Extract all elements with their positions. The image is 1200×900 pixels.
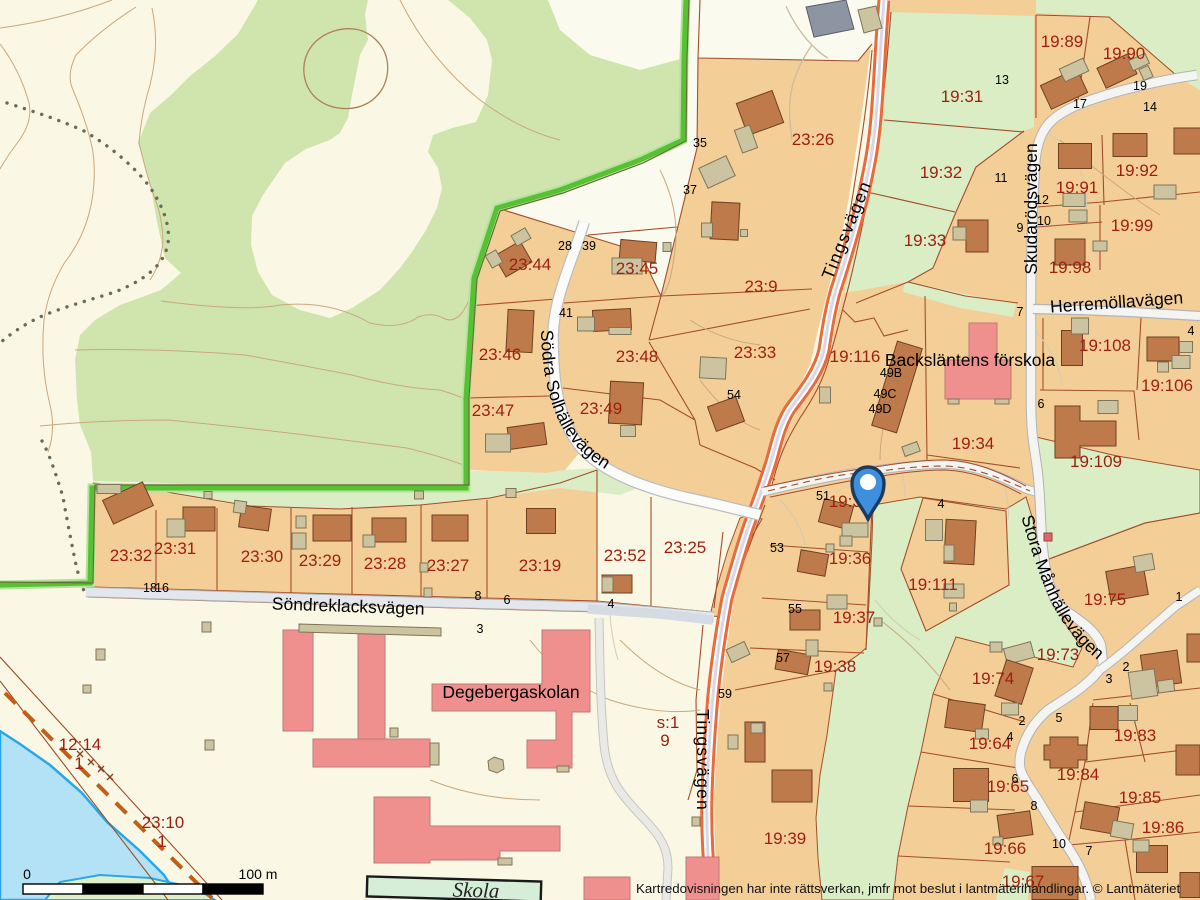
svg-text:23:46: 23:46 (479, 345, 522, 364)
svg-text:6: 6 (1038, 397, 1045, 411)
svg-text:19:89: 19:89 (1041, 32, 1084, 51)
svg-text:54: 54 (727, 388, 741, 402)
svg-text:19: 19 (1133, 79, 1147, 93)
svg-text:57: 57 (776, 651, 790, 665)
svg-text:17: 17 (1073, 97, 1087, 111)
svg-text:19:73: 19:73 (1037, 645, 1080, 664)
svg-text:49D: 49D (869, 402, 892, 416)
svg-text:23:30: 23:30 (241, 547, 284, 566)
svg-text:23:25: 23:25 (664, 538, 707, 557)
svg-text:19:38: 19:38 (814, 657, 857, 676)
svg-text:23:19: 23:19 (519, 556, 562, 575)
svg-text:0: 0 (23, 866, 31, 882)
svg-text:19:36: 19:36 (829, 549, 872, 568)
svg-text:13: 13 (995, 73, 1009, 87)
svg-text:19:108: 19:108 (1079, 336, 1131, 355)
svg-text:Tingsvägen: Tingsvägen (693, 709, 713, 811)
svg-text:14: 14 (1143, 100, 1157, 114)
svg-text:7: 7 (1017, 305, 1024, 319)
svg-text:4: 4 (1188, 324, 1195, 338)
svg-text:19:33: 19:33 (904, 231, 947, 250)
svg-text:16: 16 (155, 581, 169, 595)
svg-text:Skudarödsvägen: Skudarödsvägen (1021, 143, 1041, 274)
svg-text:23:47: 23:47 (472, 401, 515, 420)
svg-text:19:111: 19:111 (908, 575, 957, 594)
svg-text:1: 1 (1176, 590, 1183, 604)
svg-text:51: 51 (816, 489, 830, 503)
svg-text:23:29: 23:29 (299, 551, 342, 570)
svg-text:8: 8 (475, 589, 482, 603)
svg-text:23:10: 23:10 (142, 813, 185, 832)
svg-text:19:99: 19:99 (1111, 216, 1154, 235)
svg-text:19:34: 19:34 (952, 434, 995, 453)
svg-text:19:65: 19:65 (987, 777, 1030, 796)
svg-text:39: 39 (582, 239, 596, 253)
svg-text:19:98: 19:98 (1049, 258, 1092, 277)
svg-text:4: 4 (608, 597, 615, 611)
svg-text:2: 2 (1123, 660, 1130, 674)
svg-text:Degebergaskolan: Degebergaskolan (442, 682, 579, 702)
svg-text:s:1: s:1 (657, 713, 680, 732)
svg-text:10: 10 (1052, 837, 1066, 851)
svg-text:9: 9 (660, 731, 669, 750)
svg-text:Kartredovisningen har inte rät: Kartredovisningen har inte rättsverkan, … (636, 881, 1180, 896)
svg-text:59: 59 (718, 687, 732, 701)
svg-text:19:116: 19:116 (830, 347, 881, 366)
svg-text:53: 53 (770, 541, 784, 555)
svg-text:23:31: 23:31 (154, 539, 197, 558)
svg-text:19:32: 19:32 (920, 163, 963, 182)
svg-text:100 m: 100 m (239, 866, 278, 882)
svg-text:19:109: 19:109 (1070, 452, 1122, 471)
svg-text:1: 1 (74, 754, 83, 773)
svg-text:Skola: Skola (452, 877, 499, 900)
svg-text:19:37: 19:37 (833, 608, 876, 627)
svg-text:23:27: 23:27 (427, 556, 470, 575)
svg-text:11: 11 (995, 171, 1008, 185)
svg-text:19:85: 19:85 (1119, 788, 1162, 807)
svg-text:19:92: 19:92 (1116, 161, 1159, 180)
svg-text:6: 6 (1012, 772, 1019, 786)
svg-text:49C: 49C (874, 387, 897, 401)
svg-text:3: 3 (477, 622, 484, 636)
svg-text:Backsläntens förskola: Backsläntens förskola (885, 350, 1055, 370)
svg-text:19:31: 19:31 (941, 87, 984, 106)
svg-text:19:66: 19:66 (984, 839, 1027, 858)
svg-text:19:91: 19:91 (1056, 178, 1099, 197)
svg-text:19:86: 19:86 (1142, 818, 1185, 837)
svg-text:23:32: 23:32 (110, 546, 153, 565)
svg-text:35: 35 (693, 136, 707, 150)
svg-text:23:45: 23:45 (616, 259, 659, 278)
svg-text:19:74: 19:74 (972, 669, 1015, 688)
svg-text:3: 3 (1106, 672, 1113, 686)
svg-text:23:28: 23:28 (364, 554, 407, 573)
svg-text:23:52: 23:52 (604, 546, 647, 565)
svg-text:1: 1 (157, 832, 166, 851)
svg-text:19:75: 19:75 (1084, 590, 1127, 609)
svg-text:23:49: 23:49 (580, 399, 623, 418)
svg-text:23:9: 23:9 (744, 277, 777, 296)
svg-text:19:83: 19:83 (1114, 726, 1157, 745)
svg-text:23:26: 23:26 (792, 130, 835, 149)
svg-text:4: 4 (938, 497, 945, 511)
svg-text:19:84: 19:84 (1057, 765, 1100, 784)
svg-text:19:39: 19:39 (764, 829, 807, 848)
svg-text:55: 55 (788, 602, 802, 616)
svg-text:37: 37 (683, 183, 697, 197)
svg-text:7: 7 (1086, 844, 1093, 858)
svg-text:19:90: 19:90 (1103, 44, 1146, 63)
svg-text:23:48: 23:48 (616, 347, 659, 366)
svg-text:8: 8 (1031, 799, 1038, 813)
svg-text:2: 2 (1019, 714, 1026, 728)
svg-text:28: 28 (558, 239, 572, 253)
svg-text:4: 4 (1007, 730, 1014, 744)
svg-text:23:33: 23:33 (734, 343, 777, 362)
svg-text:19:64: 19:64 (969, 734, 1012, 753)
svg-text:23:44: 23:44 (509, 255, 552, 274)
svg-text:41: 41 (559, 306, 573, 320)
svg-text:6: 6 (504, 593, 511, 607)
svg-text:19:106: 19:106 (1141, 376, 1193, 395)
svg-text:5: 5 (1056, 711, 1063, 725)
svg-text:12:14: 12:14 (59, 735, 102, 754)
